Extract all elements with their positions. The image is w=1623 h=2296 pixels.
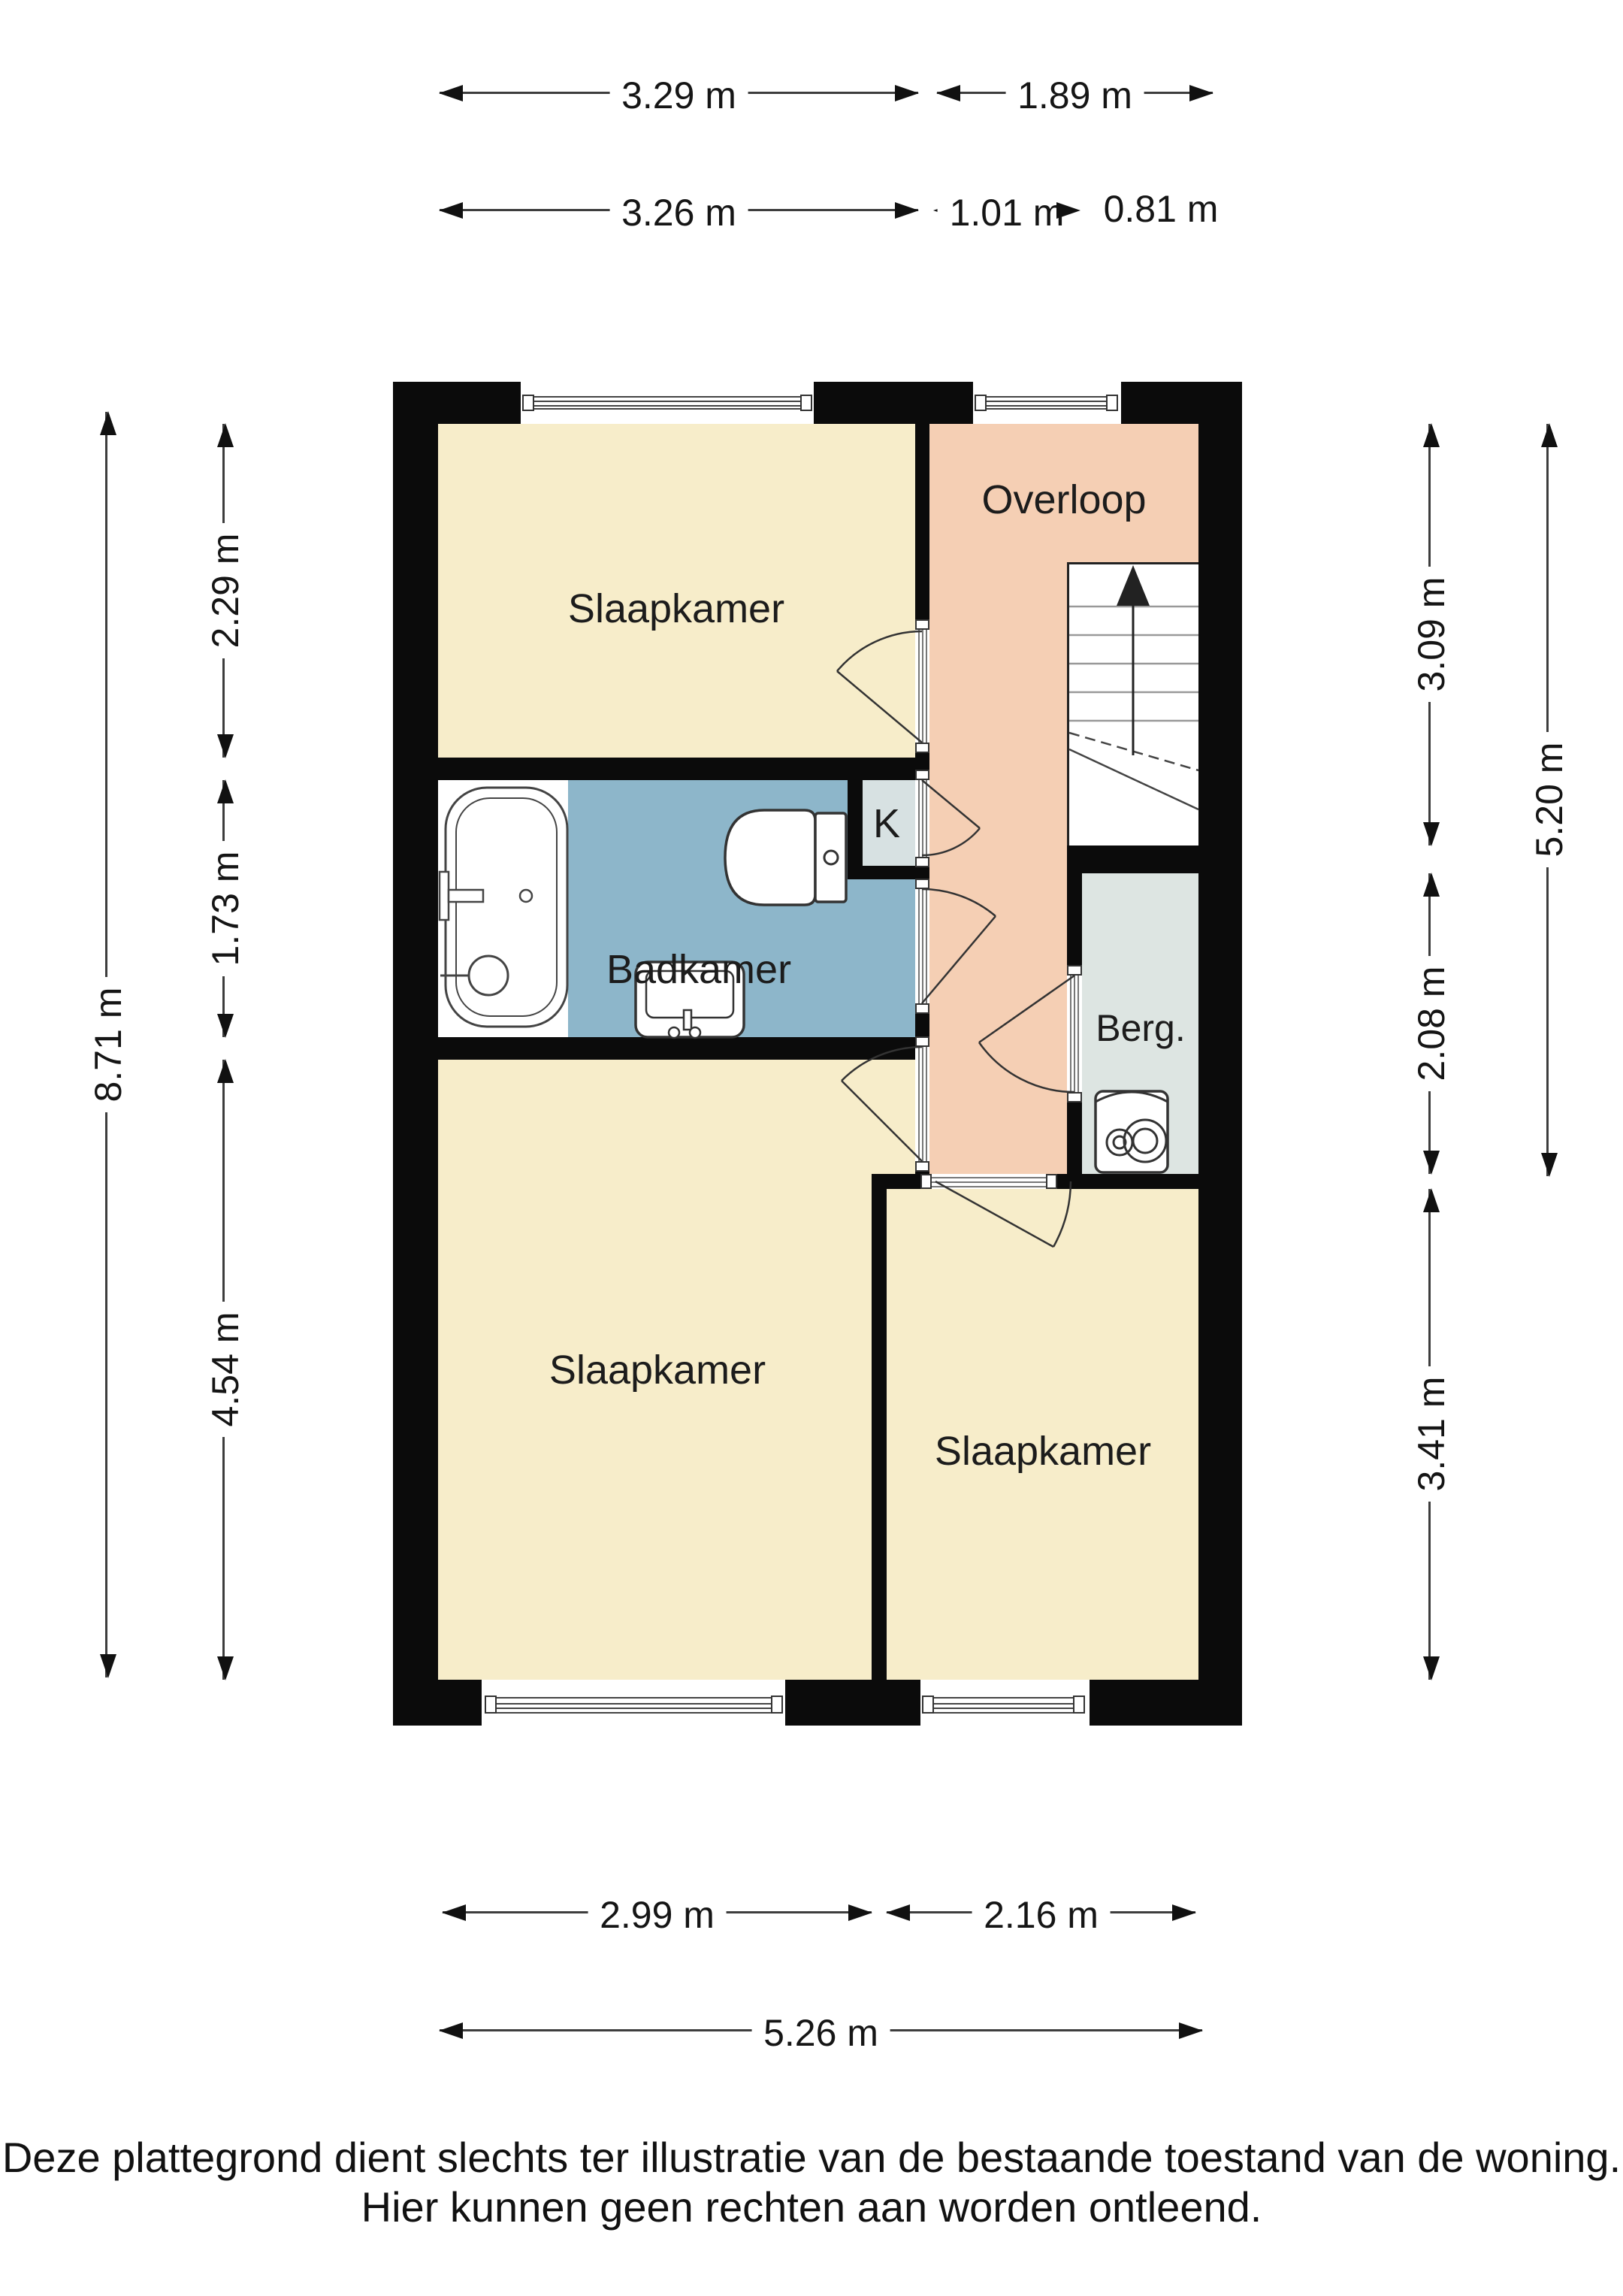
dim-label: 2.29 m	[204, 523, 247, 659]
bathtub	[440, 788, 567, 1027]
door-swing-bedroom-large	[842, 1047, 922, 1161]
dim-label: 3.09 m	[1410, 567, 1453, 703]
door-swing-bedroom-top	[837, 631, 922, 743]
dim-label: 3.41 m	[1410, 1366, 1453, 1502]
stairs-up-arrow-icon	[1117, 565, 1150, 755]
disclaimer-line-1: Deze plattegrond dient slechts ter illus…	[0, 2133, 1623, 2183]
dim-top-081: 0.81 m	[1104, 187, 1219, 231]
dim-right-outer-520: 5.20 m	[1546, 424, 1549, 1176]
dim-label: 4.54 m	[204, 1302, 247, 1438]
dim-label: 2.08 m	[1410, 956, 1453, 1092]
label-closet-k: K	[873, 800, 900, 847]
floorplan-page: 3.29 m 1.89 m 3.26 m 1.01 m 0.81 m 8.71 …	[0, 0, 1623, 2296]
dim-label: 3.26 m	[609, 191, 748, 234]
boiler	[1096, 1091, 1168, 1172]
dim-left-outer-871: 8.71 m	[105, 412, 107, 1677]
dim-label: 3.29 m	[609, 74, 748, 117]
dim-label: 1.01 m	[938, 191, 1077, 234]
label-bedroom-top: Slaapkamer	[568, 585, 784, 632]
dim-right-208: 2.08 m	[1428, 873, 1431, 1174]
door-swing-bedroom-right	[935, 1181, 1071, 1247]
dim-top-189: 1.89 m	[937, 92, 1213, 94]
dim-bottom-216: 2.16 m	[887, 1911, 1195, 1913]
plan-overlay	[393, 382, 1242, 1726]
label-storage: Berg.	[1096, 1006, 1186, 1050]
dim-label: 2.16 m	[972, 1893, 1111, 1937]
floorplan: Slaapkamer Badkamer K Overloop Berg. Sla…	[393, 382, 1242, 1726]
dim-right-309: 3.09 m	[1428, 424, 1431, 845]
disclaimer: Deze plattegrond dient slechts ter illus…	[0, 2133, 1623, 2232]
label-bedroom-right: Slaapkamer	[935, 1428, 1151, 1475]
dim-right-341: 3.41 m	[1428, 1189, 1431, 1680]
dim-top-329: 3.29 m	[440, 92, 918, 94]
dim-bottom-526: 5.26 m	[440, 2029, 1202, 2031]
dim-label: 2.99 m	[588, 1893, 727, 1937]
door-swing-bathroom	[922, 889, 996, 1003]
door-swing-storage	[979, 976, 1074, 1092]
dim-top-101: 1.01 m	[934, 209, 1080, 211]
toilet	[725, 810, 846, 905]
dim-label: 5.26 m	[751, 2011, 890, 2055]
label-bedroom-large: Slaapkamer	[549, 1347, 766, 1393]
dim-label: 5.20 m	[1528, 732, 1571, 868]
disclaimer-line-2: Hier kunnen geen rechten aan worden ontl…	[0, 2183, 1623, 2232]
label-landing: Overloop	[981, 476, 1146, 523]
dim-left-229: 2.29 m	[222, 424, 225, 758]
dim-left-173: 1.73 m	[222, 780, 225, 1037]
dim-label: 1.73 m	[204, 841, 247, 977]
door-swing-closet-k	[922, 780, 980, 855]
dim-top-326: 3.26 m	[440, 209, 918, 211]
dim-label: 1.89 m	[1005, 74, 1144, 117]
dim-left-454: 4.54 m	[222, 1060, 225, 1680]
label-bathroom: Badkamer	[606, 946, 791, 993]
dim-bottom-299: 2.99 m	[443, 1911, 872, 1913]
dim-label: 8.71 m	[86, 977, 130, 1113]
